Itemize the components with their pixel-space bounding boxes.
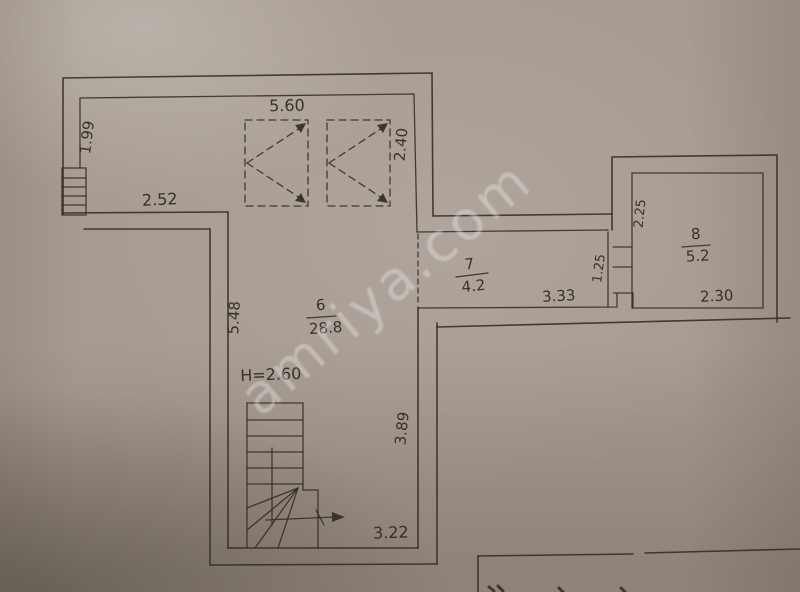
dim-room8-width: 2.30 — [700, 286, 734, 306]
dim-room6-bottom-width: 3.22 — [373, 522, 409, 542]
cutoff-title-block — [478, 549, 800, 592]
wall-hatch-block — [62, 168, 86, 215]
staircase — [247, 403, 345, 548]
dim-corridor-width: 1.25 — [590, 253, 609, 284]
dim-room6-west-height: 5.48 — [224, 301, 244, 335]
room8-number: 8 — [691, 225, 701, 243]
dim-right-upper-height: 2.40 — [391, 127, 412, 162]
watermark-text: amriya.com — [228, 148, 545, 428]
room7-area: 4.2 — [461, 276, 487, 296]
dim-left-wall-width: 2.52 — [141, 189, 178, 210]
dim-top-width: 5.60 — [269, 96, 305, 116]
dim-corridor-length: 3.33 — [542, 286, 576, 306]
slope-arrowhead-icon — [295, 123, 306, 133]
skylight-symbol-right — [327, 120, 390, 206]
dim-room8-height: 2.25 — [632, 198, 650, 228]
stair-direction-arrowhead-icon — [332, 512, 345, 522]
dim-left-upper-height: 1.99 — [76, 120, 98, 155]
room8-area: 5.2 — [685, 246, 710, 265]
dimension-labels: 5.60 1.99 2.40 2.52 5.48 3.89 3.22 3.33 … — [76, 96, 734, 543]
cutoff-text-fragments — [489, 586, 625, 592]
slope-arrowhead-icon — [377, 193, 388, 203]
outer-walls — [63, 73, 790, 565]
skylight-symbol-left — [245, 120, 308, 206]
floor-plan-photo: 5.60 1.99 2.40 2.52 5.48 3.89 3.22 3.33 … — [0, 0, 800, 592]
slope-arrowhead-icon — [295, 193, 306, 203]
dim-room6-east-height: 3.89 — [391, 411, 412, 446]
slope-arrowhead-icon — [377, 123, 388, 133]
floor-plan-drawing: 5.60 1.99 2.40 2.52 5.48 3.89 3.22 3.33 … — [0, 0, 800, 592]
